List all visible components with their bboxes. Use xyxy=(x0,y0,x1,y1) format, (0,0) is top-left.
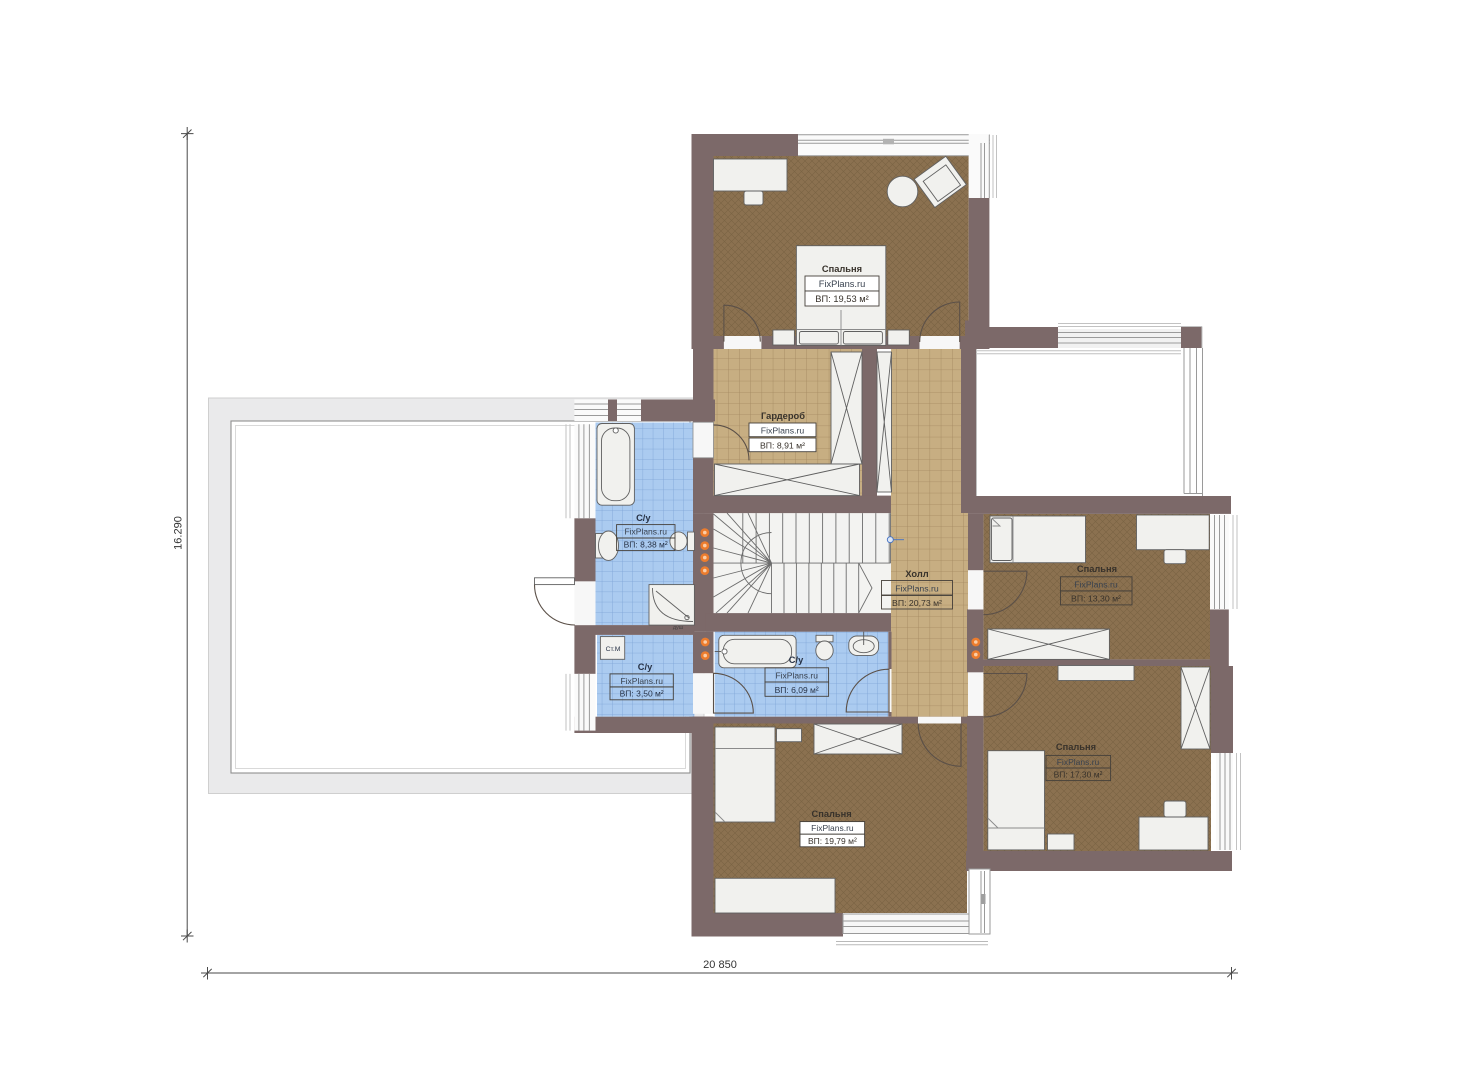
svg-text:ВП: 19,53 м²: ВП: 19,53 м² xyxy=(815,294,868,304)
svg-text:FixPlans.ru: FixPlans.ru xyxy=(761,425,805,435)
svg-text:ВП: 3,50 м²: ВП: 3,50 м² xyxy=(620,689,664,699)
svg-text:ВП: 13,30 м²: ВП: 13,30 м² xyxy=(1071,593,1121,603)
svg-text:FixPlans.ru: FixPlans.ru xyxy=(811,823,854,833)
svg-text:С/у: С/у xyxy=(638,662,653,672)
svg-text:Ст.М: Ст.М xyxy=(606,646,621,653)
svg-text:Спальня: Спальня xyxy=(1077,564,1117,574)
svg-text:ВП: 19,79 м²: ВП: 19,79 м² xyxy=(808,836,857,846)
svg-text:С/у: С/у xyxy=(636,513,651,523)
svg-text:С/у: С/у xyxy=(789,655,804,665)
svg-text:20 850: 20 850 xyxy=(703,959,737,971)
svg-text:ВП: 8,91 м²: ВП: 8,91 м² xyxy=(760,440,805,450)
svg-text:Спальня: Спальня xyxy=(822,264,862,274)
svg-text:16.290: 16.290 xyxy=(173,516,185,550)
svg-text:FixPlans.ru: FixPlans.ru xyxy=(1074,579,1118,589)
svg-text:FixPlans.ru: FixPlans.ru xyxy=(895,583,939,593)
svg-text:ВП: 17,30 м²: ВП: 17,30 м² xyxy=(1054,770,1103,780)
svg-text:Спальня: Спальня xyxy=(812,809,852,819)
svg-text:ВП: 20,73 м²: ВП: 20,73 м² xyxy=(892,598,942,608)
svg-text:ВП: 6,09 м²: ВП: 6,09 м² xyxy=(775,685,819,695)
svg-text:Гардероб: Гардероб xyxy=(761,411,805,421)
svg-text:Холл: Холл xyxy=(905,569,928,579)
svg-text:ВП: 8,38 м²: ВП: 8,38 м² xyxy=(624,540,668,550)
svg-text:FixPlans.ru: FixPlans.ru xyxy=(775,671,818,681)
svg-text:FixPlans.ru: FixPlans.ru xyxy=(1057,757,1100,767)
svg-text:Спальня: Спальня xyxy=(1056,742,1096,752)
svg-text:FixPlans.ru: FixPlans.ru xyxy=(624,527,667,537)
svg-text:FixPlans.ru: FixPlans.ru xyxy=(620,676,663,686)
svg-text:душ: душ xyxy=(673,625,684,631)
svg-text:FixPlans.ru: FixPlans.ru xyxy=(819,279,866,289)
